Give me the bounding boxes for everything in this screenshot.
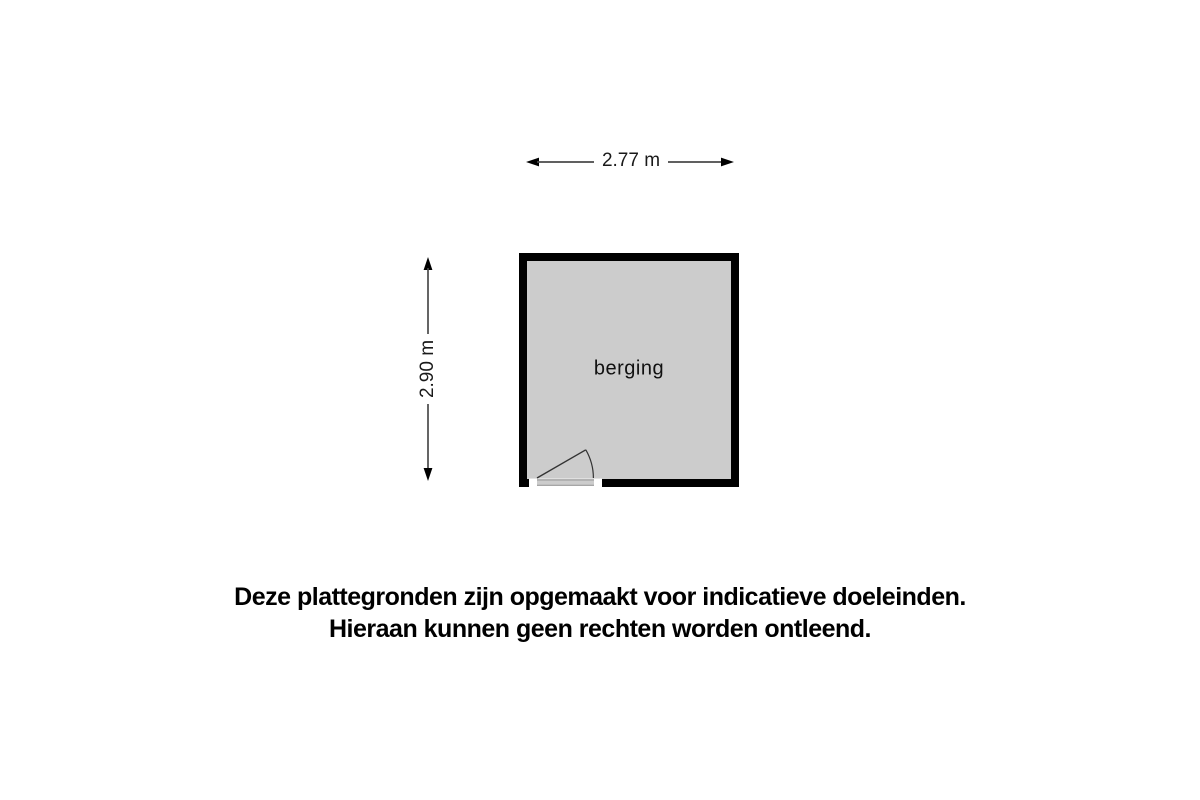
floor-plan-svg <box>0 0 1200 800</box>
dimension-width-label: 2.77 m <box>602 150 660 172</box>
arrow-bottom-head <box>424 468 433 481</box>
disclaimer-line-2: Hieraan kunnen geen rechten worden ontle… <box>0 613 1200 645</box>
door-jamb-right <box>594 479 602 487</box>
disclaimer: Deze plattegronden zijn opgemaakt voor i… <box>0 581 1200 645</box>
dimension-height-label: 2.90 m <box>417 340 439 398</box>
disclaimer-line-1: Deze plattegronden zijn opgemaakt voor i… <box>0 581 1200 613</box>
arrow-right-head <box>721 158 734 167</box>
floor-plan-page: 2.77 m 2.90 m berging Deze plattegronden… <box>0 0 1200 800</box>
room-label: berging <box>594 358 664 381</box>
door-jamb-left <box>529 479 537 487</box>
